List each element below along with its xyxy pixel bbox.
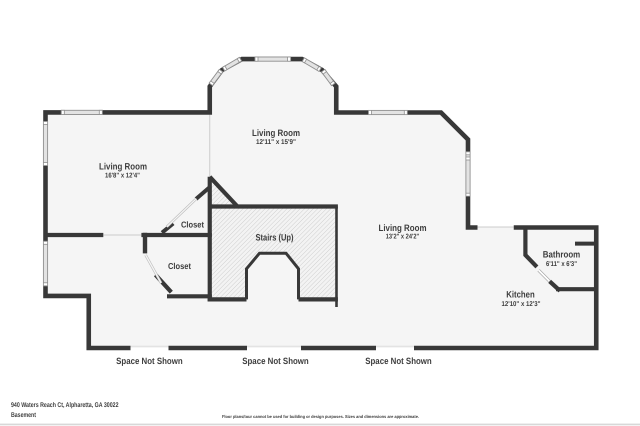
svg-text:Living Room: Living Room (252, 128, 300, 138)
svg-text:Space Not Shown: Space Not Shown (116, 356, 183, 366)
svg-text:12'11" x 15'9": 12'11" x 15'9" (256, 139, 296, 146)
svg-text:Space Not Shown: Space Not Shown (365, 356, 432, 366)
svg-text:Bathroom: Bathroom (543, 249, 581, 259)
svg-text:Living Room: Living Room (379, 223, 427, 233)
svg-text:13'2" x 24'2": 13'2" x 24'2" (386, 234, 420, 241)
svg-text:6'11" x 6'3": 6'11" x 6'3" (546, 261, 577, 268)
svg-text:Stairs (Up): Stairs (Up) (256, 233, 294, 243)
svg-text:Space Not Shown: Space Not Shown (242, 356, 309, 366)
svg-text:Floor plans/tour cannot be use: Floor plans/tour cannot be used for buil… (222, 414, 419, 419)
svg-text:940 Waters Reach Ct, Alpharett: 940 Waters Reach Ct, Alpharetta, GA 3002… (11, 402, 119, 409)
svg-text:Closet: Closet (181, 220, 204, 230)
svg-text:Closet: Closet (168, 261, 191, 271)
svg-text:12'10" x 12'3": 12'10" x 12'3" (502, 301, 541, 308)
svg-text:Living Room: Living Room (99, 161, 147, 171)
svg-text:Kitchen: Kitchen (506, 290, 535, 300)
svg-text:Basement: Basement (11, 412, 37, 419)
svg-text:16'8" x 12'4": 16'8" x 12'4" (105, 173, 140, 180)
